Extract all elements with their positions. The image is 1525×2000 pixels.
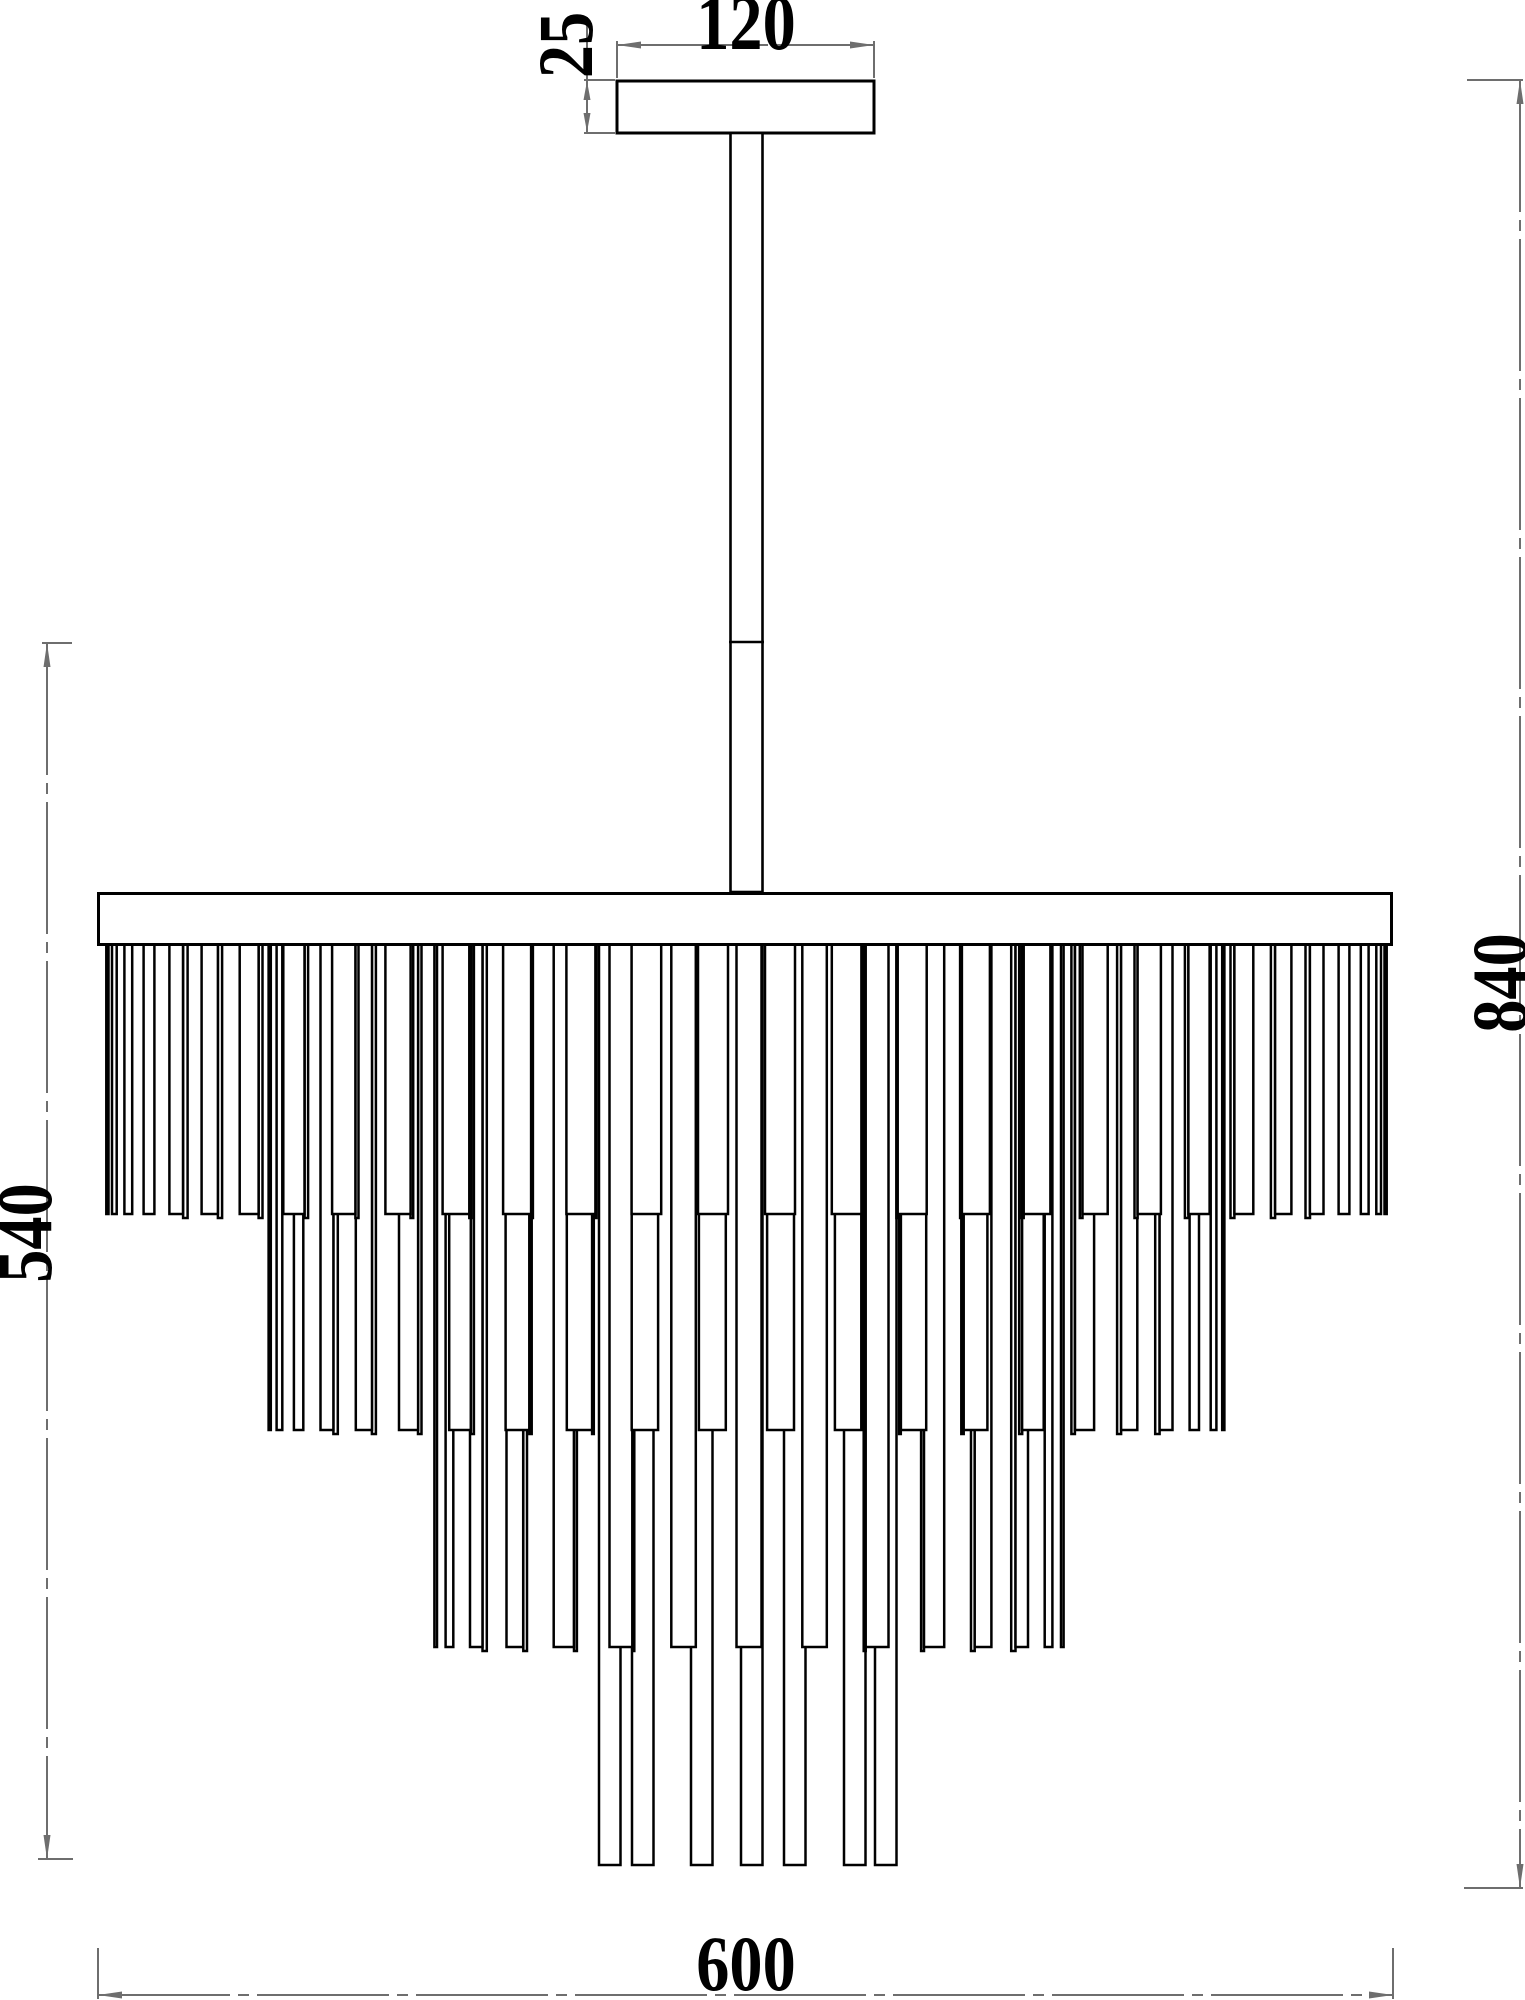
svg-text:540: 540 xyxy=(0,1183,68,1282)
svg-text:600: 600 xyxy=(696,1921,795,2000)
svg-text:840: 840 xyxy=(1457,933,1525,1032)
svg-text:120: 120 xyxy=(696,0,795,66)
svg-text:25: 25 xyxy=(523,12,609,78)
